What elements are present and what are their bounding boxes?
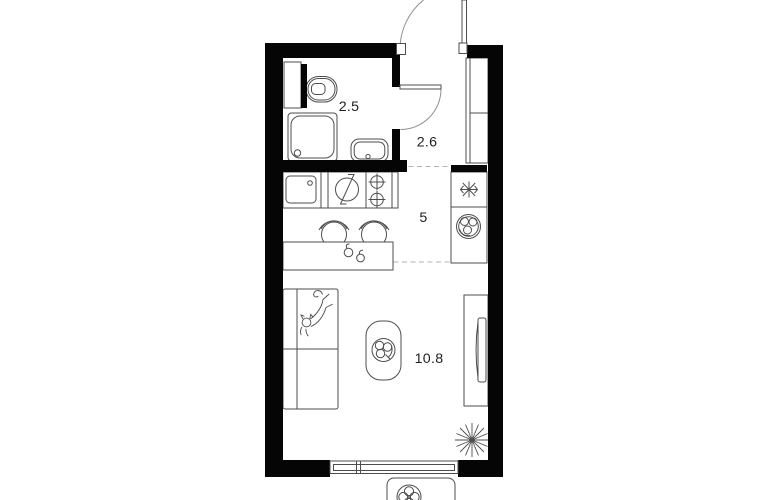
wall-bottom-right bbox=[458, 460, 503, 477]
tv-stand bbox=[464, 295, 488, 406]
entrance-door-jamb-right bbox=[459, 43, 467, 54]
plant-starburst-icon bbox=[455, 423, 489, 457]
shower-cabin-icon bbox=[288, 113, 337, 161]
entrance-door-leaf bbox=[462, 0, 467, 47]
sofa-bed bbox=[283, 289, 338, 409]
entrance-door-jamb-left bbox=[397, 44, 406, 55]
wall-right bbox=[488, 58, 503, 477]
wall-shaft-stub bbox=[301, 64, 307, 108]
wall-bathroom-kitchen bbox=[265, 160, 407, 172]
wall-bottom-left bbox=[265, 460, 330, 477]
wall-left bbox=[265, 43, 283, 477]
room-label-kitchen: 5 bbox=[419, 210, 427, 226]
tv-icon bbox=[478, 318, 486, 382]
window-frame bbox=[330, 461, 458, 474]
washbasin-icon bbox=[351, 139, 388, 162]
fridge-snowflake-icon bbox=[461, 182, 478, 198]
toilet-icon bbox=[306, 77, 337, 103]
floor-plan: 2.5 2.6 5 10.8 bbox=[0, 0, 770, 500]
basin-faucet-dot bbox=[366, 154, 370, 158]
shower-drain bbox=[294, 150, 300, 156]
wall-top bbox=[265, 43, 400, 58]
room-label-living-room: 10.8 bbox=[415, 351, 444, 367]
vent-shaft bbox=[284, 62, 301, 108]
kitchen-sink-icon bbox=[286, 176, 316, 203]
room-label-bathroom: 2.5 bbox=[339, 99, 360, 115]
room-label-hallway: 2.6 bbox=[417, 135, 438, 151]
wall-hallway-stub bbox=[451, 165, 487, 172]
sink-faucet-dot bbox=[308, 181, 313, 186]
bar-counter bbox=[283, 242, 393, 270]
interior-door-leaf bbox=[400, 85, 441, 89]
appliance-cell bbox=[451, 207, 487, 263]
wardrobe bbox=[466, 58, 488, 163]
wall-bathroom-partition-upper bbox=[392, 58, 400, 87]
wall-top-right bbox=[467, 45, 503, 58]
